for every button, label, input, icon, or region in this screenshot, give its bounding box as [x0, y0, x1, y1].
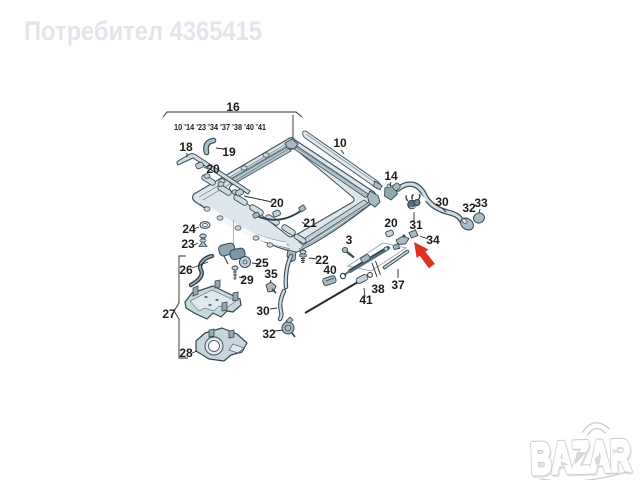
- svg-text:24: 24: [182, 222, 196, 236]
- svg-text:31: 31: [409, 218, 423, 232]
- svg-text:10: 10: [333, 136, 347, 150]
- svg-text:40: 40: [323, 263, 337, 277]
- svg-text:30: 30: [256, 304, 270, 318]
- svg-text:30: 30: [435, 195, 449, 209]
- svg-text:41: 41: [359, 293, 373, 307]
- svg-text:18: 18: [179, 140, 193, 154]
- svg-text:34: 34: [426, 233, 440, 247]
- svg-text:26: 26: [179, 263, 193, 277]
- svg-text:20: 20: [384, 216, 398, 230]
- svg-text:14: 14: [384, 169, 398, 183]
- svg-text:20: 20: [270, 196, 284, 210]
- svg-text:37: 37: [391, 278, 405, 292]
- svg-text:3: 3: [346, 233, 353, 247]
- svg-text:38: 38: [371, 282, 385, 296]
- svg-text:33: 33: [474, 196, 488, 210]
- svg-text:10 '14 '23 '34 '37 '38 '40 '4: 10 '14 '23 '34 '37 '38 '40 '41: [174, 122, 266, 132]
- svg-text:23: 23: [181, 237, 195, 251]
- svg-text:32: 32: [262, 327, 276, 341]
- svg-text:28: 28: [179, 346, 193, 360]
- svg-text:35: 35: [264, 267, 278, 281]
- svg-text:29: 29: [240, 273, 254, 287]
- svg-text:20: 20: [206, 162, 220, 176]
- svg-text:27: 27: [162, 307, 176, 321]
- svg-text:16: 16: [226, 100, 240, 114]
- svg-text:21: 21: [303, 216, 317, 230]
- svg-text:Потребител 4365415: Потребител 4365415: [24, 16, 262, 46]
- svg-text:19: 19: [222, 145, 236, 159]
